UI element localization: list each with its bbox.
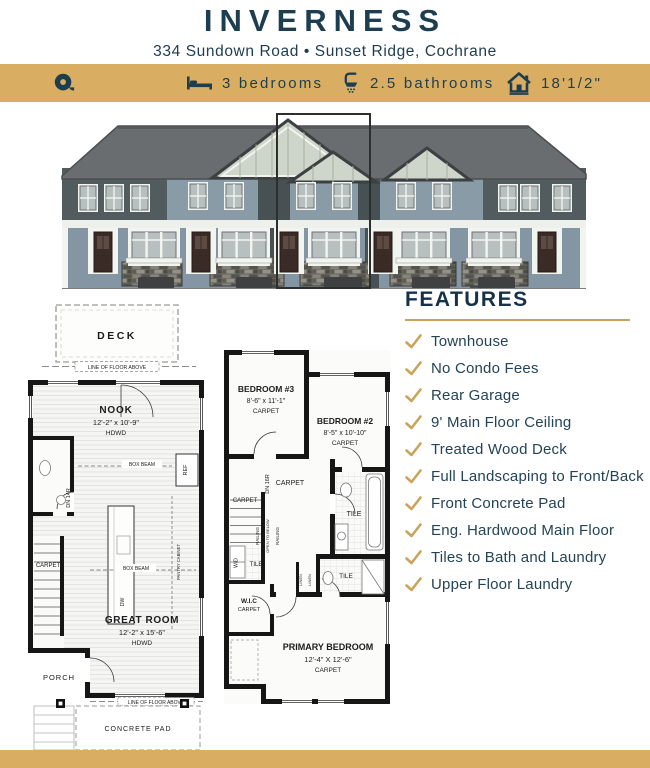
stair-carpet-label: CARPET — [233, 498, 258, 504]
feature-label: Full Landscaping to Front/Back — [431, 469, 644, 484]
floorplan-upper: BEDROOM #3 8'-6" x 11'-1" CARPET BEDROOM… — [216, 344, 398, 712]
page-title: INVERNESS — [0, 0, 650, 39]
bedroom2-name: BEDROOM #2 — [317, 416, 373, 426]
great-room-name: GREAT ROOM — [105, 615, 179, 626]
bedroom3-name: BEDROOM #3 — [238, 384, 294, 394]
linen-label: LINEN — [298, 574, 303, 586]
feature-label: Front Concrete Pad — [431, 496, 566, 511]
bathrooms-item: 2.5 bathrooms — [342, 64, 495, 102]
primary-name: PRIMARY BEDROOM — [283, 642, 374, 652]
deck-label: DECK — [97, 330, 137, 342]
check-icon — [405, 442, 422, 457]
concrete-pad-area: LINE OF FLOOR ABOVE CONCRETE PAD — [34, 698, 203, 751]
box-beam-label: BOX BEAM — [123, 566, 149, 572]
feature-item: Full Landscaping to Front/Back — [405, 469, 647, 484]
dn-label: DN 16R — [265, 474, 271, 494]
nook-name: NOOK — [99, 405, 132, 416]
deck-area: DECK LINE OF FLOOR ABOVE — [42, 305, 196, 372]
line-of-floor-above-label: LINE OF FLOOR ABOVE — [128, 700, 185, 706]
primary-floor: CARPET — [315, 667, 341, 674]
railing-label: RAILING — [255, 527, 260, 546]
feature-item: Front Concrete Pad — [405, 496, 647, 511]
feature-item: Eng. Hardwood Main Floor — [405, 523, 647, 538]
ref-label: REF — [183, 464, 189, 476]
width-label: 18'1/2" — [541, 75, 602, 92]
nook-floor: HDWD — [106, 430, 127, 437]
feature-item: 9' Main Floor Ceiling — [405, 415, 647, 430]
concrete-pad-label: CONCRETE PAD — [104, 726, 171, 733]
footer-bar — [0, 750, 650, 768]
feature-label: Tiles to Bath and Laundry — [431, 550, 606, 565]
feature-label: 9' Main Floor Ceiling — [431, 415, 571, 430]
check-icon — [405, 577, 422, 592]
width-item: 18'1/2" — [506, 64, 602, 102]
tape-measure-icon — [52, 71, 77, 96]
wic-floor: CARPET — [238, 607, 261, 613]
feature-label: Townhouse — [431, 334, 509, 349]
elevation-rendering — [60, 112, 588, 290]
bedroom2-floor: CARPET — [332, 440, 358, 447]
dw-label: DW — [120, 598, 126, 607]
nook-dims: 12'-2" x 10'-9" — [93, 418, 139, 427]
feature-item: No Condo Fees — [405, 361, 647, 376]
features-list: Townhouse No Condo Fees Rear Garage 9' M… — [405, 334, 647, 592]
check-icon — [405, 415, 422, 430]
open-to-below-label: OPEN TO BELOW — [265, 519, 270, 553]
check-icon — [405, 388, 422, 403]
tape-measure-item — [52, 64, 77, 102]
elevation-svg — [60, 112, 588, 290]
check-icon — [405, 469, 422, 484]
line-of-floor-above-label: LINE OF FLOOR ABOVE — [88, 365, 147, 371]
address-line: 334 Sundown Road • Sunset Ridge, Cochran… — [0, 43, 650, 61]
floorplan-main: DECK LINE OF FLOOR ABOVE — [20, 300, 212, 762]
check-icon — [405, 550, 422, 565]
tile-bath-label: TILE — [347, 511, 362, 518]
features-section: FEATURES Townhouse No Condo Fees Rear Ga… — [405, 288, 647, 604]
check-icon — [405, 496, 422, 511]
railing-label: RAILING — [275, 527, 280, 546]
features-heading: FEATURES — [405, 288, 630, 321]
great-room-floor: HDWD — [132, 640, 153, 647]
tile-ensuite-label: TILE — [339, 573, 353, 580]
feature-label: Upper Floor Laundry — [431, 577, 572, 592]
feature-item: Townhouse — [405, 334, 647, 349]
bathrooms-label: 2.5 bathrooms — [370, 75, 495, 92]
feature-label: No Condo Fees — [431, 361, 539, 376]
check-icon — [405, 523, 422, 538]
box-beam-label: BOX BEAM — [129, 462, 155, 468]
great-room-dims: 12'-2" x 15'-6" — [119, 628, 165, 637]
bed-icon — [186, 74, 213, 92]
bedrooms-item: 3 bedrooms — [186, 64, 323, 102]
house-width-icon — [506, 71, 532, 95]
primary-dims: 12'-4" X 12'-6" — [304, 655, 352, 664]
feature-label: Treated Wood Deck — [431, 442, 567, 457]
feature-label: Eng. Hardwood Main Floor — [431, 523, 614, 538]
bedroom3-dims: 8'-6" x 11'-1" — [247, 398, 286, 405]
feature-sheet: INVERNESS 334 Sundown Road • Sunset Ridg… — [0, 0, 650, 768]
linen-label: LINEN — [307, 574, 312, 586]
tile-laundry-label: TILE — [250, 562, 263, 568]
feature-item: Rear Garage — [405, 388, 647, 403]
porch-label: PORCH — [43, 673, 75, 682]
check-icon — [405, 361, 422, 376]
dn-label: DN 14R — [66, 488, 72, 508]
bedroom2-dims: 8'-5" x 10'-10" — [323, 430, 367, 437]
header: INVERNESS 334 Sundown Road • Sunset Ridg… — [0, 0, 650, 61]
stair-carpet-label: CARPET — [36, 563, 61, 569]
feature-item: Treated Wood Deck — [405, 442, 647, 457]
pantry-label: PANTRY CABINET — [176, 544, 181, 580]
bedrooms-label: 3 bedrooms — [222, 75, 323, 92]
fridge: REF — [176, 454, 198, 486]
shower-icon — [342, 71, 361, 95]
hall-carpet-label: CARPET — [276, 480, 305, 487]
wd-label: W/D — [234, 558, 240, 568]
check-icon — [405, 334, 422, 349]
spec-banner: 3 bedrooms 2.5 bathrooms 18'1/2" — [0, 64, 650, 102]
feature-item: Upper Floor Laundry — [405, 577, 647, 592]
feature-item: Tiles to Bath and Laundry — [405, 550, 647, 565]
wic-name: W.I.C — [241, 598, 257, 605]
feature-label: Rear Garage — [431, 388, 520, 403]
bedroom3-floor: CARPET — [253, 408, 279, 415]
